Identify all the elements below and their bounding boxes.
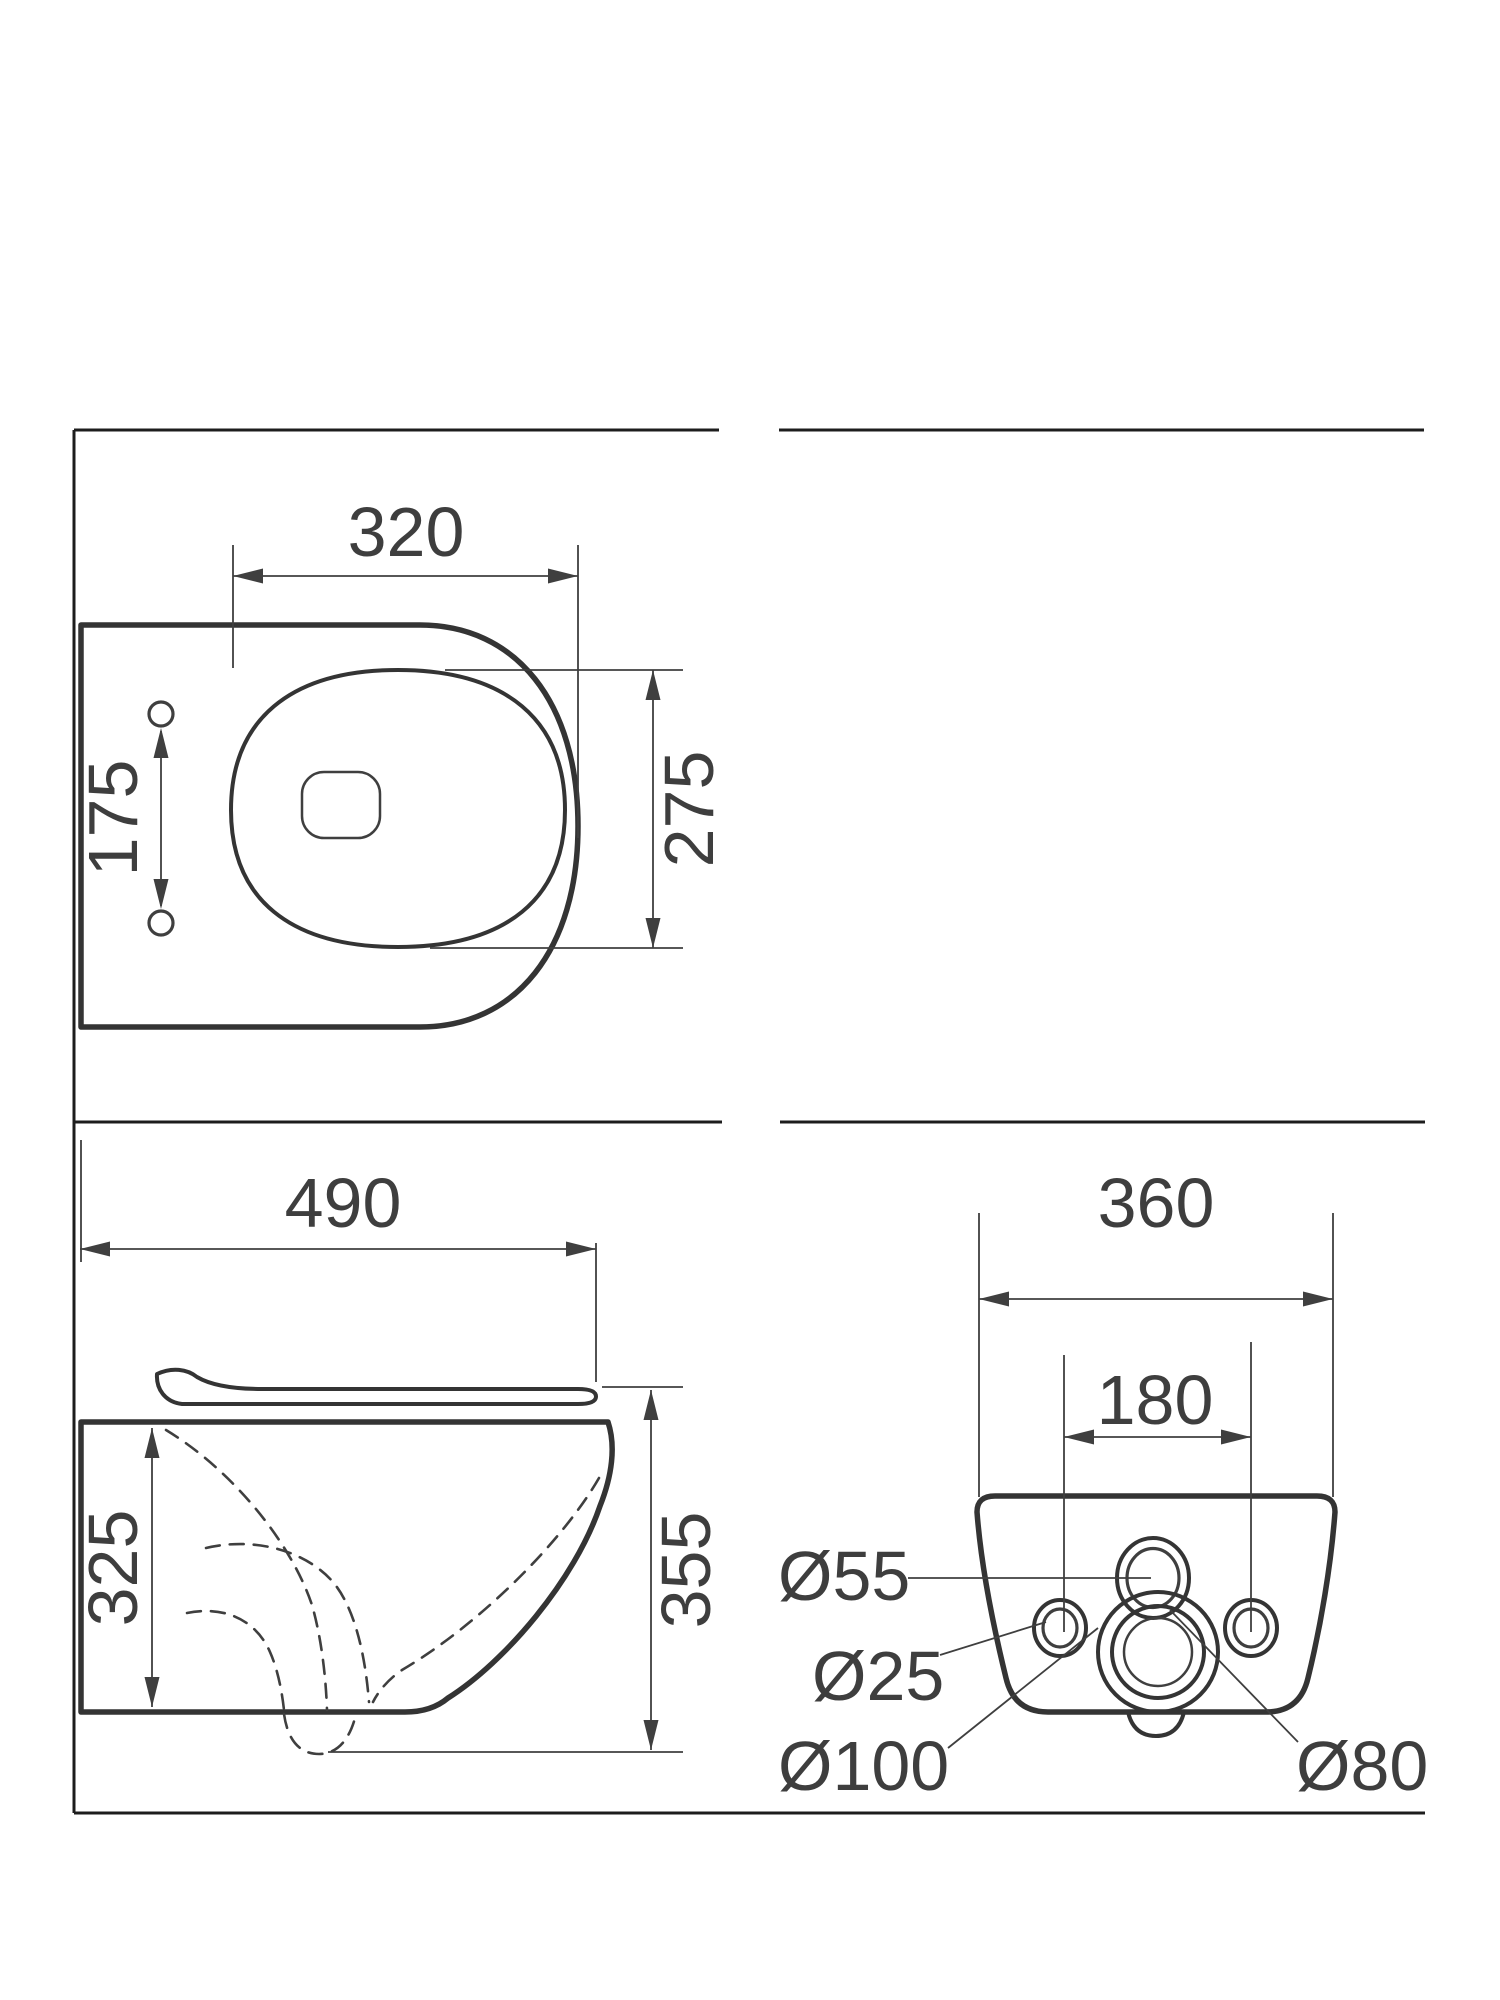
side-view-body-outline [81,1422,612,1712]
dim-355-label: 355 [647,1512,725,1629]
side-view-trap-dashed-2 [206,1544,369,1702]
rear-view-body-outline [977,1496,1335,1712]
dim-490-label: 490 [285,1164,402,1242]
dim-175: 175 [74,728,169,909]
side-view-seat-lid [157,1370,596,1404]
dim-355: 355 [328,1387,725,1752]
dim-175-arrow-up [154,728,169,758]
rear-view: 360 180 Ø55 Ø25 Ø100 Ø80 [778,1164,1428,1805]
dim-325-arrow-bottom [145,1677,160,1707]
dim-360-arrow-right [1303,1292,1333,1307]
top-view-mount-hole-upper [149,702,173,726]
dim-180: 180 [1064,1342,1251,1632]
rear-view-outlet-circle-80 [1112,1606,1204,1698]
side-view-trap-dashed-1 [166,1430,327,1710]
dim-320-arrow-right [548,569,578,584]
dim-325-arrow-top [145,1428,160,1458]
dim-360: 360 [979,1164,1333,1497]
top-view-bowl-opening [231,670,565,947]
dim-275-arrow-bottom [646,918,661,948]
frame-lines [74,430,1425,1813]
rear-view-fixing-hole-left-inner [1043,1609,1077,1647]
dim-490-arrow-left [80,1242,110,1257]
dim-355-arrow-bottom [644,1720,659,1750]
dim-275-arrow-top [646,670,661,700]
dim-355-arrow-top [644,1390,659,1420]
dim-320-label: 320 [348,493,465,571]
label-d25-text: Ø25 [812,1637,944,1715]
label-d55-text: Ø55 [778,1537,910,1615]
side-view: 490 325 355 [74,1140,725,1754]
dim-275-label: 275 [650,751,728,868]
dim-180-arrow-left [1064,1430,1094,1445]
rear-view-outlet-circle-100 [1098,1592,1218,1712]
technical-drawing-page: 320 175 275 [0,0,1500,2000]
dim-360-label: 360 [1098,1164,1215,1242]
dim-325-label: 325 [74,1510,152,1627]
label-d55: Ø55 [778,1537,1151,1615]
side-view-trap-dashed-3 [187,1611,284,1710]
dim-180-arrow-right [1221,1430,1251,1445]
label-d80-text: Ø80 [1296,1727,1428,1805]
rear-view-outlet-nub [1128,1712,1184,1736]
dim-175-arrow-down [154,879,169,909]
dim-490-arrow-right [566,1242,596,1257]
top-view-body-outline [81,625,578,1027]
top-view-drain [302,772,380,838]
technical-drawing: 320 175 275 [0,0,1500,2000]
dim-360-arrow-left [979,1292,1009,1307]
dim-325: 325 [74,1428,160,1707]
rear-view-outlet-bore [1124,1618,1192,1686]
label-d80: Ø80 [1170,1610,1428,1805]
label-d100-text: Ø100 [778,1727,949,1805]
top-view-mount-hole-lower [149,911,173,935]
side-view-outlet-dashed [284,1714,356,1754]
dim-175-label: 175 [74,760,152,877]
dim-180-label: 180 [1097,1361,1214,1439]
top-view: 320 175 275 [74,493,728,1027]
dim-490: 490 [80,1140,596,1382]
dim-320-arrow-left [233,569,263,584]
label-d25: Ø25 [812,1622,1046,1715]
